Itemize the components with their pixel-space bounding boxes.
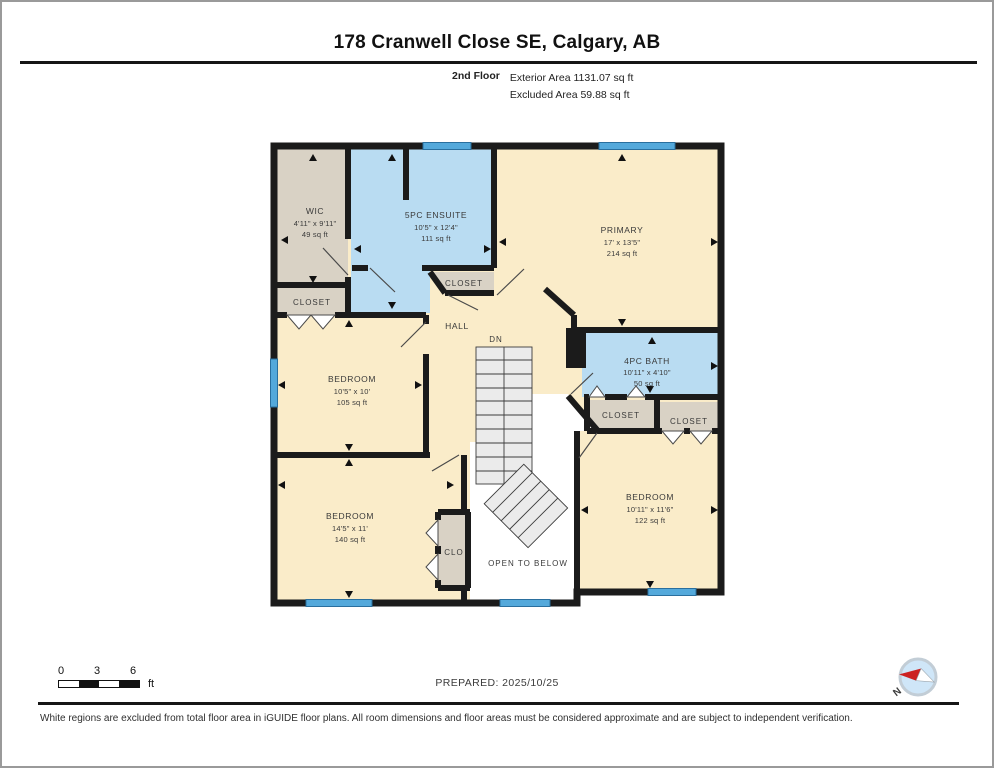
closet-label: CLOSET xyxy=(293,298,331,307)
svg-text:14'5" x 11': 14'5" x 11' xyxy=(332,524,368,533)
floorplan-drawing: WIC 4'11" x 9'11" 49 sq ft 5PC ENSUITE 1… xyxy=(2,2,994,768)
scale-tick-6: 6 xyxy=(130,665,136,677)
svg-text:BEDROOM: BEDROOM xyxy=(626,492,674,502)
svg-text:PRIMARY: PRIMARY xyxy=(601,225,644,235)
window xyxy=(423,143,471,150)
svg-text:4PC BATH: 4PC BATH xyxy=(624,356,670,366)
closet-label: CLOSET xyxy=(602,411,640,420)
svg-text:122 sq ft: 122 sq ft xyxy=(635,516,666,525)
stairs-dn-label: DN xyxy=(489,335,503,344)
svg-text:49 sq ft: 49 sq ft xyxy=(302,230,329,239)
svg-text:10'5" x 12'4": 10'5" x 12'4" xyxy=(414,223,458,232)
closet-label: CLOSET xyxy=(445,279,483,288)
room-label-primary: PRIMARY 17' x 13'5" 214 sq ft xyxy=(601,225,644,258)
window xyxy=(271,359,278,407)
svg-text:111 sq ft: 111 sq ft xyxy=(421,234,451,243)
prepared-date: PREPARED: 2025/10/25 xyxy=(2,677,992,689)
svg-text:10'11" x 4'10": 10'11" x 4'10" xyxy=(623,368,671,377)
window xyxy=(648,589,696,596)
scale-tick-3: 3 xyxy=(94,665,100,677)
svg-text:10'11" x 11'6": 10'11" x 11'6" xyxy=(627,505,674,514)
closet-label: CLOSET xyxy=(670,417,708,426)
disclaimer-text: White regions are excluded from total fl… xyxy=(40,713,975,724)
compass-icon: N xyxy=(890,652,944,706)
wic-floor xyxy=(277,149,348,285)
hall-label: HALL xyxy=(445,321,469,331)
svg-text:17' x 13'5": 17' x 13'5" xyxy=(604,238,641,247)
window xyxy=(500,600,550,607)
svg-text:BEDROOM: BEDROOM xyxy=(326,511,374,521)
footer-divider xyxy=(38,702,959,705)
svg-text:5PC ENSUITE: 5PC ENSUITE xyxy=(405,210,467,220)
svg-text:50 sq ft: 50 sq ft xyxy=(634,379,661,388)
window xyxy=(599,143,675,150)
svg-text:4'11" x 9'11": 4'11" x 9'11" xyxy=(294,219,337,228)
open-to-below-label: OPEN TO BELOW xyxy=(488,559,568,568)
svg-text:10'5" x 10': 10'5" x 10' xyxy=(334,387,371,396)
clo-label: CLO xyxy=(444,548,463,557)
svg-text:BEDROOM: BEDROOM xyxy=(328,374,376,384)
svg-text:214 sq ft: 214 sq ft xyxy=(607,249,638,258)
svg-text:WIC: WIC xyxy=(306,206,324,216)
scale-tick-0: 0 xyxy=(58,665,64,677)
svg-text:105 sq ft: 105 sq ft xyxy=(337,398,368,407)
svg-text:140 sq ft: 140 sq ft xyxy=(335,535,366,544)
floorplan-page: 178 Cranwell Close SE, Calgary, AB 2nd F… xyxy=(0,0,994,768)
window xyxy=(306,600,372,607)
